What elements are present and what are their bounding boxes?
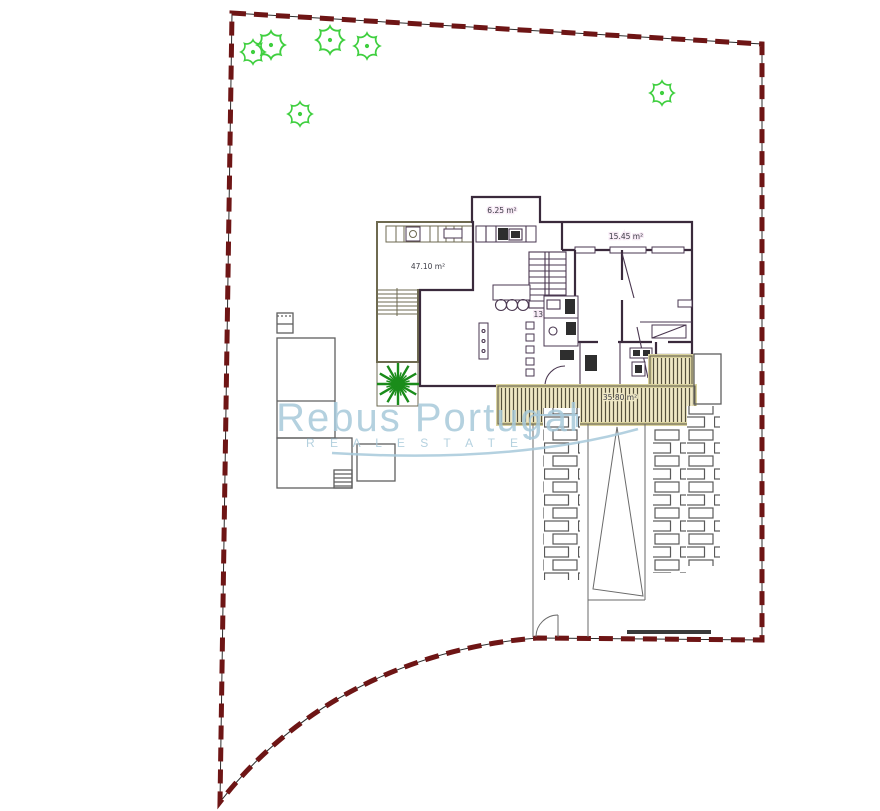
step-stones-middle xyxy=(653,428,686,573)
tree-center-dot xyxy=(366,45,369,48)
ramp-arrow xyxy=(593,427,643,596)
site-plan-drawing: 47.10 m² 6.25 m² 15.45 m² xyxy=(0,0,880,811)
neighbor-stairs xyxy=(334,470,352,488)
entrance-gate xyxy=(536,615,558,637)
toilet-icon xyxy=(566,322,576,335)
gate-swing-arc xyxy=(536,615,558,637)
window-icon xyxy=(575,247,595,253)
tree-center-dot xyxy=(299,113,302,116)
site-plan-canvas: 47.10 m² 6.25 m² 15.45 m² xyxy=(0,0,880,811)
door-swing-arc xyxy=(545,366,565,386)
column-markers xyxy=(479,322,534,376)
hob-icon xyxy=(444,229,462,238)
toilet-icon xyxy=(565,299,575,314)
basin-icon xyxy=(560,350,574,360)
watermark-tagline: R E A L E S T A T E xyxy=(306,436,524,450)
area-label-top-room: 6.25 m² xyxy=(487,206,516,215)
stool-icon xyxy=(507,300,518,311)
bathroom-core xyxy=(544,296,578,346)
basin-icon xyxy=(633,350,640,356)
building: 47.10 m² 6.25 m² 15.45 m² xyxy=(377,197,695,424)
window-icon xyxy=(652,247,684,253)
stool-icon xyxy=(496,300,507,311)
toilet-icon xyxy=(585,355,597,371)
terrace-area: 47.10 m² xyxy=(377,222,473,362)
island-counter xyxy=(493,285,530,311)
boundary-wall-segment xyxy=(627,630,711,634)
area-label-terrace: 47.10 m² xyxy=(411,262,445,271)
area-label-deck: 35.80 m² xyxy=(603,393,637,402)
terrace-stairs xyxy=(377,288,418,316)
stool-icon xyxy=(518,300,529,311)
radiator-icon xyxy=(479,323,488,359)
area-label-right-room: 15.45 m² xyxy=(609,232,643,241)
trees xyxy=(241,26,674,126)
oven-icon xyxy=(498,228,508,240)
lower-bathroom xyxy=(545,350,597,386)
tree-center-dot xyxy=(661,92,664,95)
tree-center-dot xyxy=(252,51,255,54)
terrace-outline xyxy=(377,222,473,362)
sink-icon xyxy=(406,227,420,241)
door-swing-line xyxy=(622,253,634,298)
window-icon xyxy=(610,247,646,253)
appliance-icon xyxy=(511,231,520,238)
tree-center-dot xyxy=(329,39,332,42)
garden-structure xyxy=(694,354,721,404)
room-right-top: 15.45 m² xyxy=(562,222,692,253)
tree-center-dot xyxy=(270,44,273,47)
step-stones-right xyxy=(687,406,720,566)
toilet-icon xyxy=(635,365,642,373)
shelf-icon xyxy=(678,300,692,307)
watermark-brand: Rebus Portugal xyxy=(276,396,580,440)
kitchen-band xyxy=(476,226,536,242)
